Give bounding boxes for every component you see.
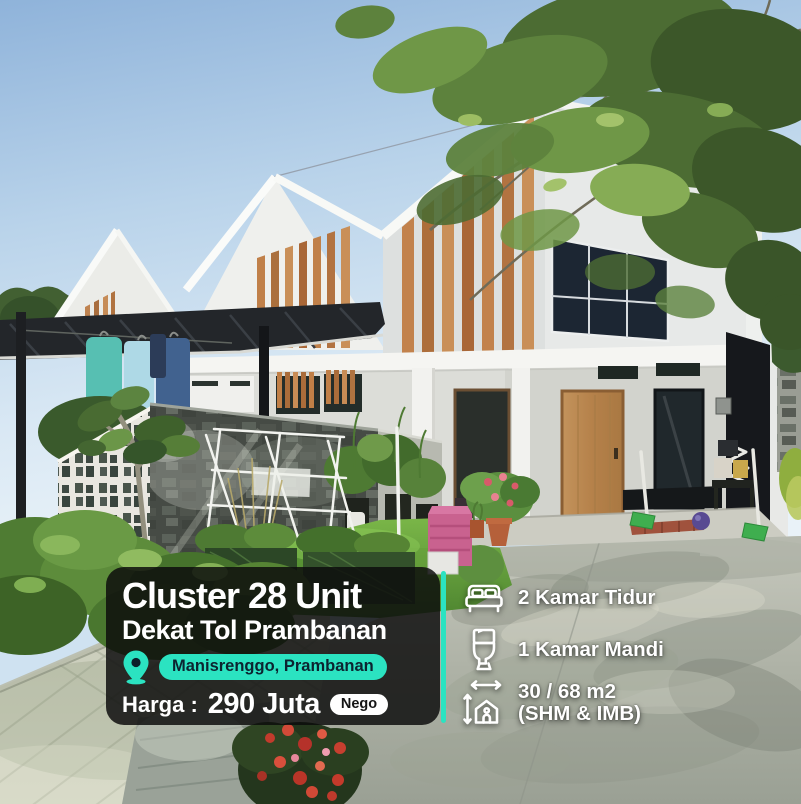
feature-bedrooms-label: 2 Kamar Tidur (518, 587, 655, 609)
listing-title: Cluster 28 Unit (122, 578, 424, 615)
feature-bathrooms: 1 Kamar Mandi (461, 625, 791, 675)
house-measure-icon (461, 680, 507, 726)
price-label: Harga : (122, 692, 198, 718)
bed-icon (461, 581, 507, 615)
toilet-icon (461, 627, 507, 673)
feature-bedrooms: 2 Kamar Tidur (461, 577, 791, 619)
feature-size-label: 30 / 68 m2 (SHM & IMB) (518, 681, 641, 724)
feature-size-line1: 30 / 68 m2 (518, 681, 641, 703)
info-panel: Cluster 28 Unit Dekat Tol Prambanan Mani… (106, 567, 440, 725)
map-pin-icon (122, 649, 150, 685)
feature-size-line2: (SHM & IMB) (518, 703, 641, 725)
location-row: Manisrenggo, Prambanan (122, 651, 424, 683)
nego-badge: Nego (330, 694, 388, 716)
feature-bathrooms-label: 1 Kamar Mandi (518, 639, 664, 661)
listing-image: Cluster 28 Unit Dekat Tol Prambanan Mani… (0, 0, 801, 804)
divider-line (441, 571, 446, 723)
listing-subtitle: Dekat Tol Prambanan (122, 616, 424, 644)
price-value: 290 Juta (208, 688, 320, 721)
location-badge: Manisrenggo, Prambanan (159, 654, 387, 680)
price-row: Harga : 290 Juta Nego (122, 688, 424, 721)
feature-size: 30 / 68 m2 (SHM & IMB) (461, 677, 791, 729)
feature-list: 2 Kamar Tidur 1 Kamar Mandi (461, 577, 791, 729)
